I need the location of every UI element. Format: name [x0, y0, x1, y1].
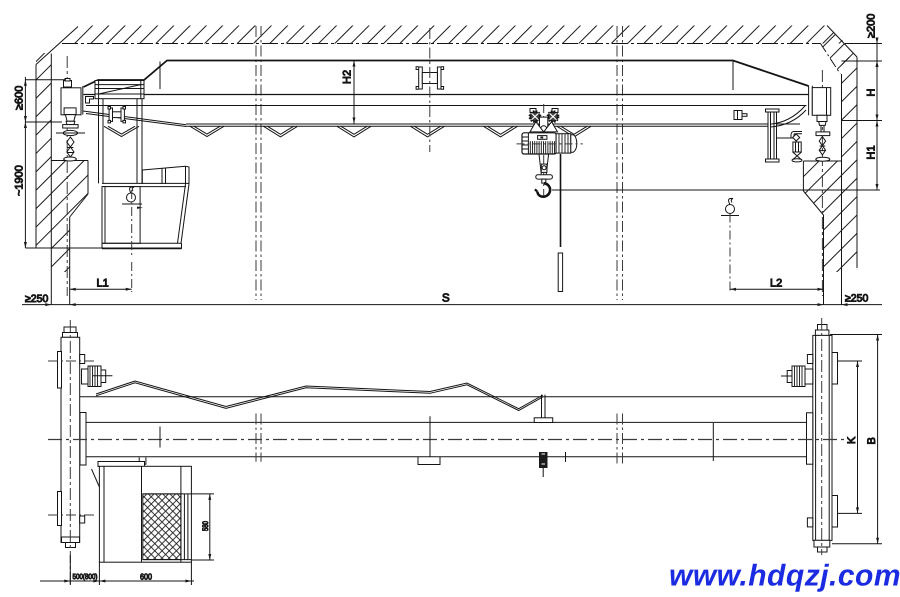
- svg-text:600: 600: [140, 572, 152, 582]
- svg-text:≥200: ≥200: [866, 14, 878, 38]
- svg-text:≥250: ≥250: [25, 293, 48, 305]
- svg-text:580: 580: [201, 521, 210, 531]
- svg-text:H2: H2: [342, 70, 354, 84]
- svg-text:L2: L2: [770, 278, 782, 290]
- svg-text:H1: H1: [866, 145, 878, 159]
- svg-text:500(800): 500(800): [73, 572, 98, 581]
- svg-text:B: B: [866, 437, 878, 444]
- svg-text:K: K: [846, 436, 858, 444]
- svg-text:L1: L1: [97, 278, 109, 290]
- svg-text:H: H: [866, 89, 878, 97]
- svg-text:≥250: ≥250: [845, 293, 868, 305]
- svg-text:≥600: ≥600: [14, 86, 26, 110]
- svg-text:~1900: ~1900: [14, 165, 26, 196]
- svg-text:www.hdqzj.com: www.hdqzj.com: [669, 560, 900, 593]
- svg-text:S: S: [442, 293, 450, 305]
